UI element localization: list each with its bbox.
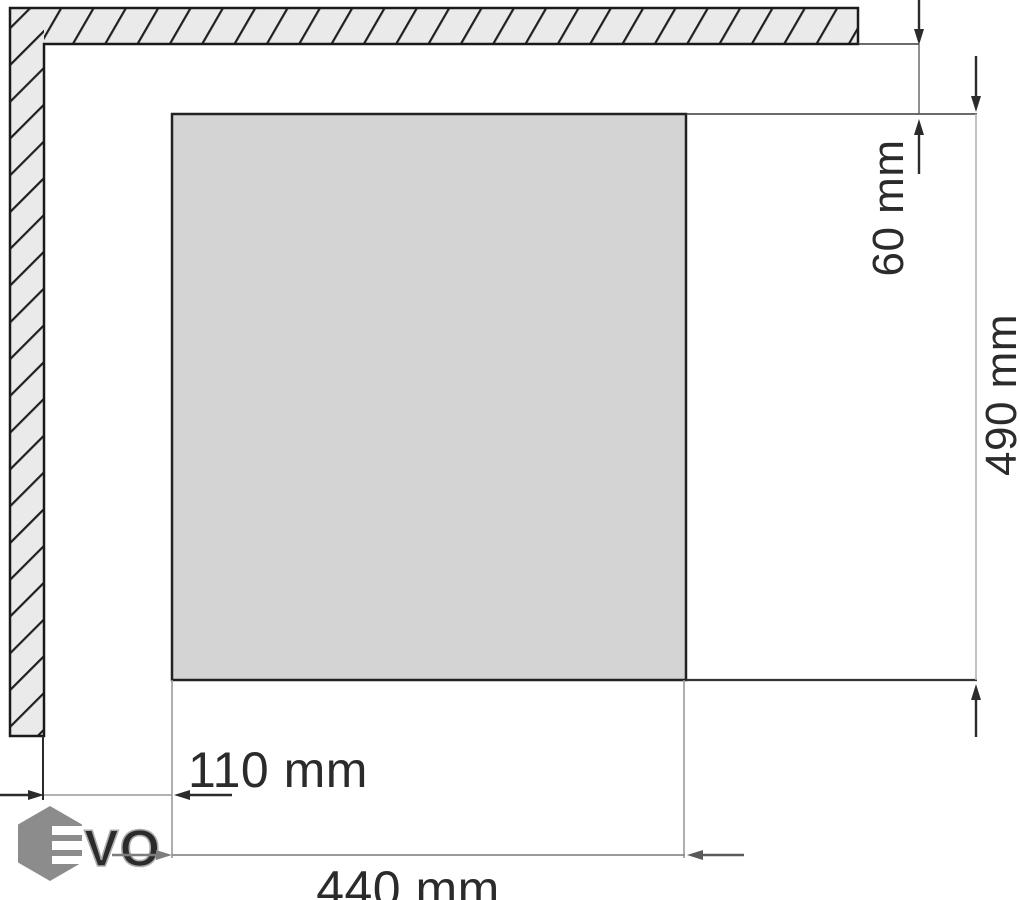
dimension-label-110mm: 110 mm — [188, 742, 368, 798]
cutout-area — [172, 114, 686, 680]
evo-logo: VO — [18, 806, 161, 881]
logo-text-vo: VO — [84, 820, 161, 878]
arrow-right-icon — [28, 790, 44, 800]
wall-top-bar — [10, 8, 858, 44]
dimension-label-60mm: 60 mm — [864, 140, 913, 277]
dimension-440mm: 440 mm — [172, 850, 744, 900]
arrow-up-icon — [971, 684, 981, 700]
arrow-down-icon — [971, 96, 981, 112]
diagram-canvas: 60 mm 490 mm 110 mm 440 mm VO — [0, 0, 1020, 900]
logo-e-bar — [52, 841, 84, 850]
cutout-diagram: 60 mm 490 mm 110 mm 440 mm VO — [0, 0, 1020, 900]
dimension-110mm: 110 mm — [0, 742, 368, 800]
logo-e-bar — [52, 826, 84, 835]
arrow-up-icon — [914, 119, 924, 135]
arrow-right-icon — [156, 850, 172, 860]
arrow-down-icon — [914, 29, 924, 45]
logo-letter-e — [52, 826, 84, 864]
dimension-label-490mm: 490 mm — [977, 314, 1020, 476]
dimension-label-440mm: 440 mm — [316, 861, 500, 900]
dimension-60mm: 60 mm — [864, 0, 924, 276]
dimension-490mm: 490 mm — [971, 56, 1020, 737]
wall-left-bar — [10, 8, 44, 736]
logo-e-bar — [52, 856, 84, 864]
arrow-left-icon — [687, 850, 703, 860]
